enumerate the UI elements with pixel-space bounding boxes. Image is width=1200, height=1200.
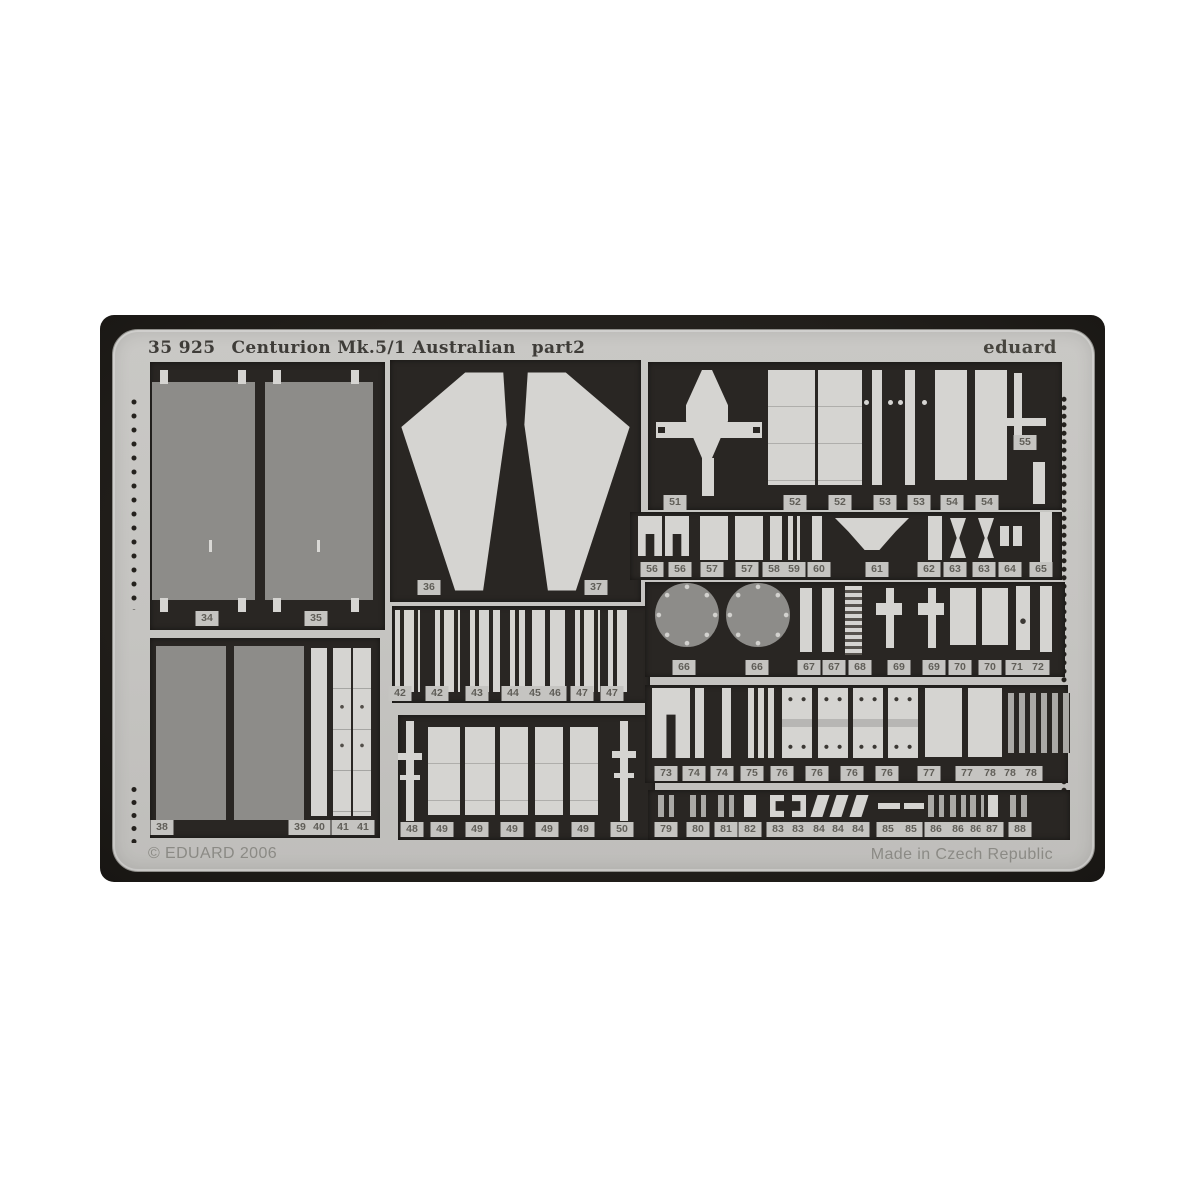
part-49-plate [500,727,528,815]
part-61-chevron [835,518,909,550]
part-34-panel [152,382,255,600]
part-label: 70 [979,660,1002,675]
cutout-block-34-35: 34 35 [150,362,385,630]
part-49-plate [465,727,495,815]
part-label: 36 [418,580,441,595]
part-79 [658,795,674,817]
part-35-panel [265,382,373,600]
part-label: 76 [771,766,794,781]
part-66-disc [655,583,719,647]
part-64-bracket [1000,526,1009,546]
cutout-block-38-41: 38 39 40 41 41 [150,638,380,838]
part-label: 60 [808,562,831,577]
part-label: 74 [711,766,734,781]
part-49-plate [428,727,460,815]
part-label: 42 [426,686,449,701]
part-69-stem [886,588,894,648]
sprue-tab [351,598,359,612]
arm-notch [658,427,665,433]
part-label: 67 [798,660,821,675]
part-57-plate [700,516,728,560]
part-label: 42 [389,686,412,701]
part-label: 79 [655,822,678,837]
part-71-strip [1016,586,1030,650]
part-label: 56 [669,562,692,577]
part-81 [718,795,734,817]
cutout-block-51-55: 51 52 52 53 53 54 54 55 [648,362,1062,510]
part-62-strip [928,516,942,560]
part-69-bar [876,603,902,615]
part-80 [690,795,706,817]
part-43-strip [470,610,500,692]
kit-name: Centurion Mk.5/1 Australian [231,338,515,358]
part-85-tbar [878,803,900,809]
part-label: 77 [918,766,941,781]
part-label: 59 [783,562,806,577]
part-label: 73 [655,766,678,781]
part-54-plate [975,370,1007,480]
part-label: 69 [888,660,911,675]
part-label: 78 [999,766,1022,781]
part-47-strip [608,610,630,692]
part-label: 75 [741,766,764,781]
part-label: 78 [1020,766,1043,781]
sheet-header: 35 925 Centurion Mk.5/1 Australian part2… [148,337,1057,358]
part-label: 61 [866,562,889,577]
part-label: 57 [736,562,759,577]
catalog-number: 35 925 [148,338,215,358]
part-label: 68 [849,660,872,675]
tooling-dots-left-bottom [128,783,140,843]
part-48-crossbar [400,775,420,780]
part-39-panel [234,646,304,820]
part-label: 52 [784,495,807,510]
part-label: 72 [1027,660,1050,675]
part-76-plate [782,688,812,758]
part-42-strip [435,610,460,692]
part-76-plate [888,688,918,758]
sprue-tab [160,370,168,384]
part-label: 47 [601,686,624,701]
part-65-strip [1040,512,1052,562]
part-48-rod [406,721,414,821]
part-label: 46 [544,686,567,701]
part-label: 76 [806,766,829,781]
part-label: 63 [944,562,967,577]
part-84-angle [810,795,829,817]
part-label: 57 [701,562,724,577]
part-52-plate [818,370,862,485]
part-label: 44 [502,686,525,701]
sprue-tab [273,370,281,384]
cutout-block-48-50: 48 49 49 49 49 49 50 [398,715,655,840]
rivet-dot [888,400,893,405]
part-73-fork [652,688,690,758]
part-suffix: part2 [532,338,586,358]
part-label: 76 [841,766,864,781]
part-label: 49 [536,822,559,837]
part-75-strips [748,688,776,758]
part-51-body [686,370,728,458]
part-54-plate [935,370,967,480]
cutout-block-66-72: 66 66 67 67 68 69 69 70 70 71 72 [645,582,1065,677]
part-37-fender [521,368,633,595]
part-label: 66 [673,660,696,675]
part-label: 49 [501,822,524,837]
part-label: 82 [739,822,762,837]
part-66-disc [726,583,790,647]
part-label: 70 [949,660,972,675]
part-label: 63 [973,562,996,577]
part-72-strip [1040,586,1052,652]
cutout-block-73-78: 73 74 74 75 76 76 76 76 77 77 78 78 78 [645,685,1068,783]
part-label: 43 [466,686,489,701]
part-label: 51 [664,495,687,510]
part-74-strip [695,688,704,758]
brand-logo-text: eduard [983,337,1057,358]
part-57-plate [735,516,763,560]
part-45-strip [532,610,545,692]
part-label: 35 [305,611,328,626]
part-label: 41 [352,820,375,835]
part-label: 34 [196,611,219,626]
part-77-plate [925,688,962,757]
part-67-strip [800,588,812,652]
part-56-fork [638,516,662,556]
part-86 [970,795,984,817]
part-49-plate [535,727,563,815]
part-58-strip [770,516,782,560]
part-50-crossbar [614,773,634,778]
part-70-plate [950,588,976,645]
part-87 [988,795,998,817]
part-63-bowtie [950,518,966,558]
part-label: 49 [572,822,595,837]
part-label: 85 [900,822,923,837]
part-label: 53 [874,495,897,510]
cutout-block-79-88: 79 80 81 82 83 83 84 84 84 85 85 86 86 8… [648,790,1070,840]
part-47-strip [575,610,600,692]
part-label: 76 [876,766,899,781]
part-38-panel [156,646,226,820]
part-label: 52 [829,495,852,510]
part-51-stem [702,458,714,496]
rivet-dot [864,400,869,405]
part-label: 84 [847,822,870,837]
part-63-bowtie [978,518,994,558]
part-48-crossbar [398,753,422,760]
part-36-fender [398,368,510,595]
part-label: 81 [715,822,738,837]
fret-title: 35 925 Centurion Mk.5/1 Australian part2 [148,338,585,358]
part-41-strip [333,648,351,816]
part-51-arm [656,422,762,438]
part-label: 71 [1006,660,1029,675]
part-60-strip [812,516,822,560]
part-label: 55 [1014,435,1037,450]
part-label: 48 [401,822,424,837]
part-label: 80 [687,822,710,837]
cutout-block-56-65: 56 56 57 57 58 59 60 61 62 63 63 64 65 [630,512,1062,580]
part-69-bar [918,603,944,615]
part-44-strip [510,610,525,692]
part-78-strips [1008,693,1026,753]
part-label: 64 [999,562,1022,577]
part-label: 77 [956,766,979,781]
part-label: 47 [571,686,594,701]
rivet-dot [922,400,927,405]
part-84-angle [849,795,868,817]
part-label: 37 [585,580,608,595]
part-68-ladder [845,586,862,655]
photo-etch-fret-photo: 35 925 Centurion Mk.5/1 Australian part2… [100,315,1105,882]
part-53-strip [905,370,915,485]
sprue-tab [238,598,246,612]
etch-mark [209,540,212,552]
part-84-angle [829,795,848,817]
copyright-text: © EDUARD 2006 [148,845,277,863]
part-53-strip [872,370,882,485]
part-42-strip [395,610,420,692]
part-label: 49 [466,822,489,837]
rivet-dot [898,400,903,405]
part-label: 40 [308,820,331,835]
part-label: 86 [925,822,948,837]
part-label: 38 [151,820,174,835]
part-78-strips [1030,693,1048,753]
part-85-tbar [904,803,924,809]
part-41-strip [353,648,371,816]
part-64-bracket [1013,526,1022,546]
part-77-plate [968,688,1002,757]
part-40-strip [311,648,327,816]
part-55-crossbar [1006,418,1046,426]
part-56-fork [665,516,689,556]
sprue-tab [351,370,359,384]
part-46-strip [550,610,565,692]
sprue-tab [160,598,168,612]
part-label: 54 [976,495,999,510]
part-label: 56 [641,562,664,577]
part-76-plate [853,688,883,758]
cutout-block-42-47: 42 42 43 44 45 46 47 47 [392,606,650,703]
part-83-bracket [770,795,784,817]
arm-notch [753,427,760,433]
part-49-plate [570,727,598,815]
part-label: 50 [611,822,634,837]
part-50-rod [620,721,628,821]
tooling-dots-left-top [128,395,140,610]
part-label: 54 [941,495,964,510]
part-label: 49 [431,822,454,837]
part-78-strips [1052,693,1070,753]
part-83-bracket [792,795,806,817]
part-52-plate [768,370,815,485]
part-82 [744,795,756,817]
part-label: 65 [1030,562,1053,577]
part-label: 66 [746,660,769,675]
part-label: 53 [908,495,931,510]
made-in-text: Made in Czech Republic [871,846,1053,864]
part-70-plate [982,588,1008,645]
part-label: 74 [683,766,706,781]
part-label: 88 [1009,822,1032,837]
part-50-crossbar [612,751,636,758]
etch-mark [317,540,320,552]
sprue-tab [273,598,281,612]
part-label: 85 [877,822,900,837]
part-label: 69 [923,660,946,675]
part-86 [928,795,944,817]
part-69-stem [928,588,936,648]
part-67-strip [822,588,834,652]
part-label: 67 [823,660,846,675]
part-88 [1010,795,1030,817]
part-label: 83 [787,822,810,837]
small-part [1033,462,1045,504]
part-76-plate [818,688,848,758]
part-label: 62 [918,562,941,577]
part-label: 87 [981,822,1004,837]
sprue-tab [238,370,246,384]
part-74-strip [722,688,731,758]
cutout-block-36-37: 36 37 [390,360,641,602]
part-59-strip [788,516,800,560]
part-86 [950,795,966,817]
